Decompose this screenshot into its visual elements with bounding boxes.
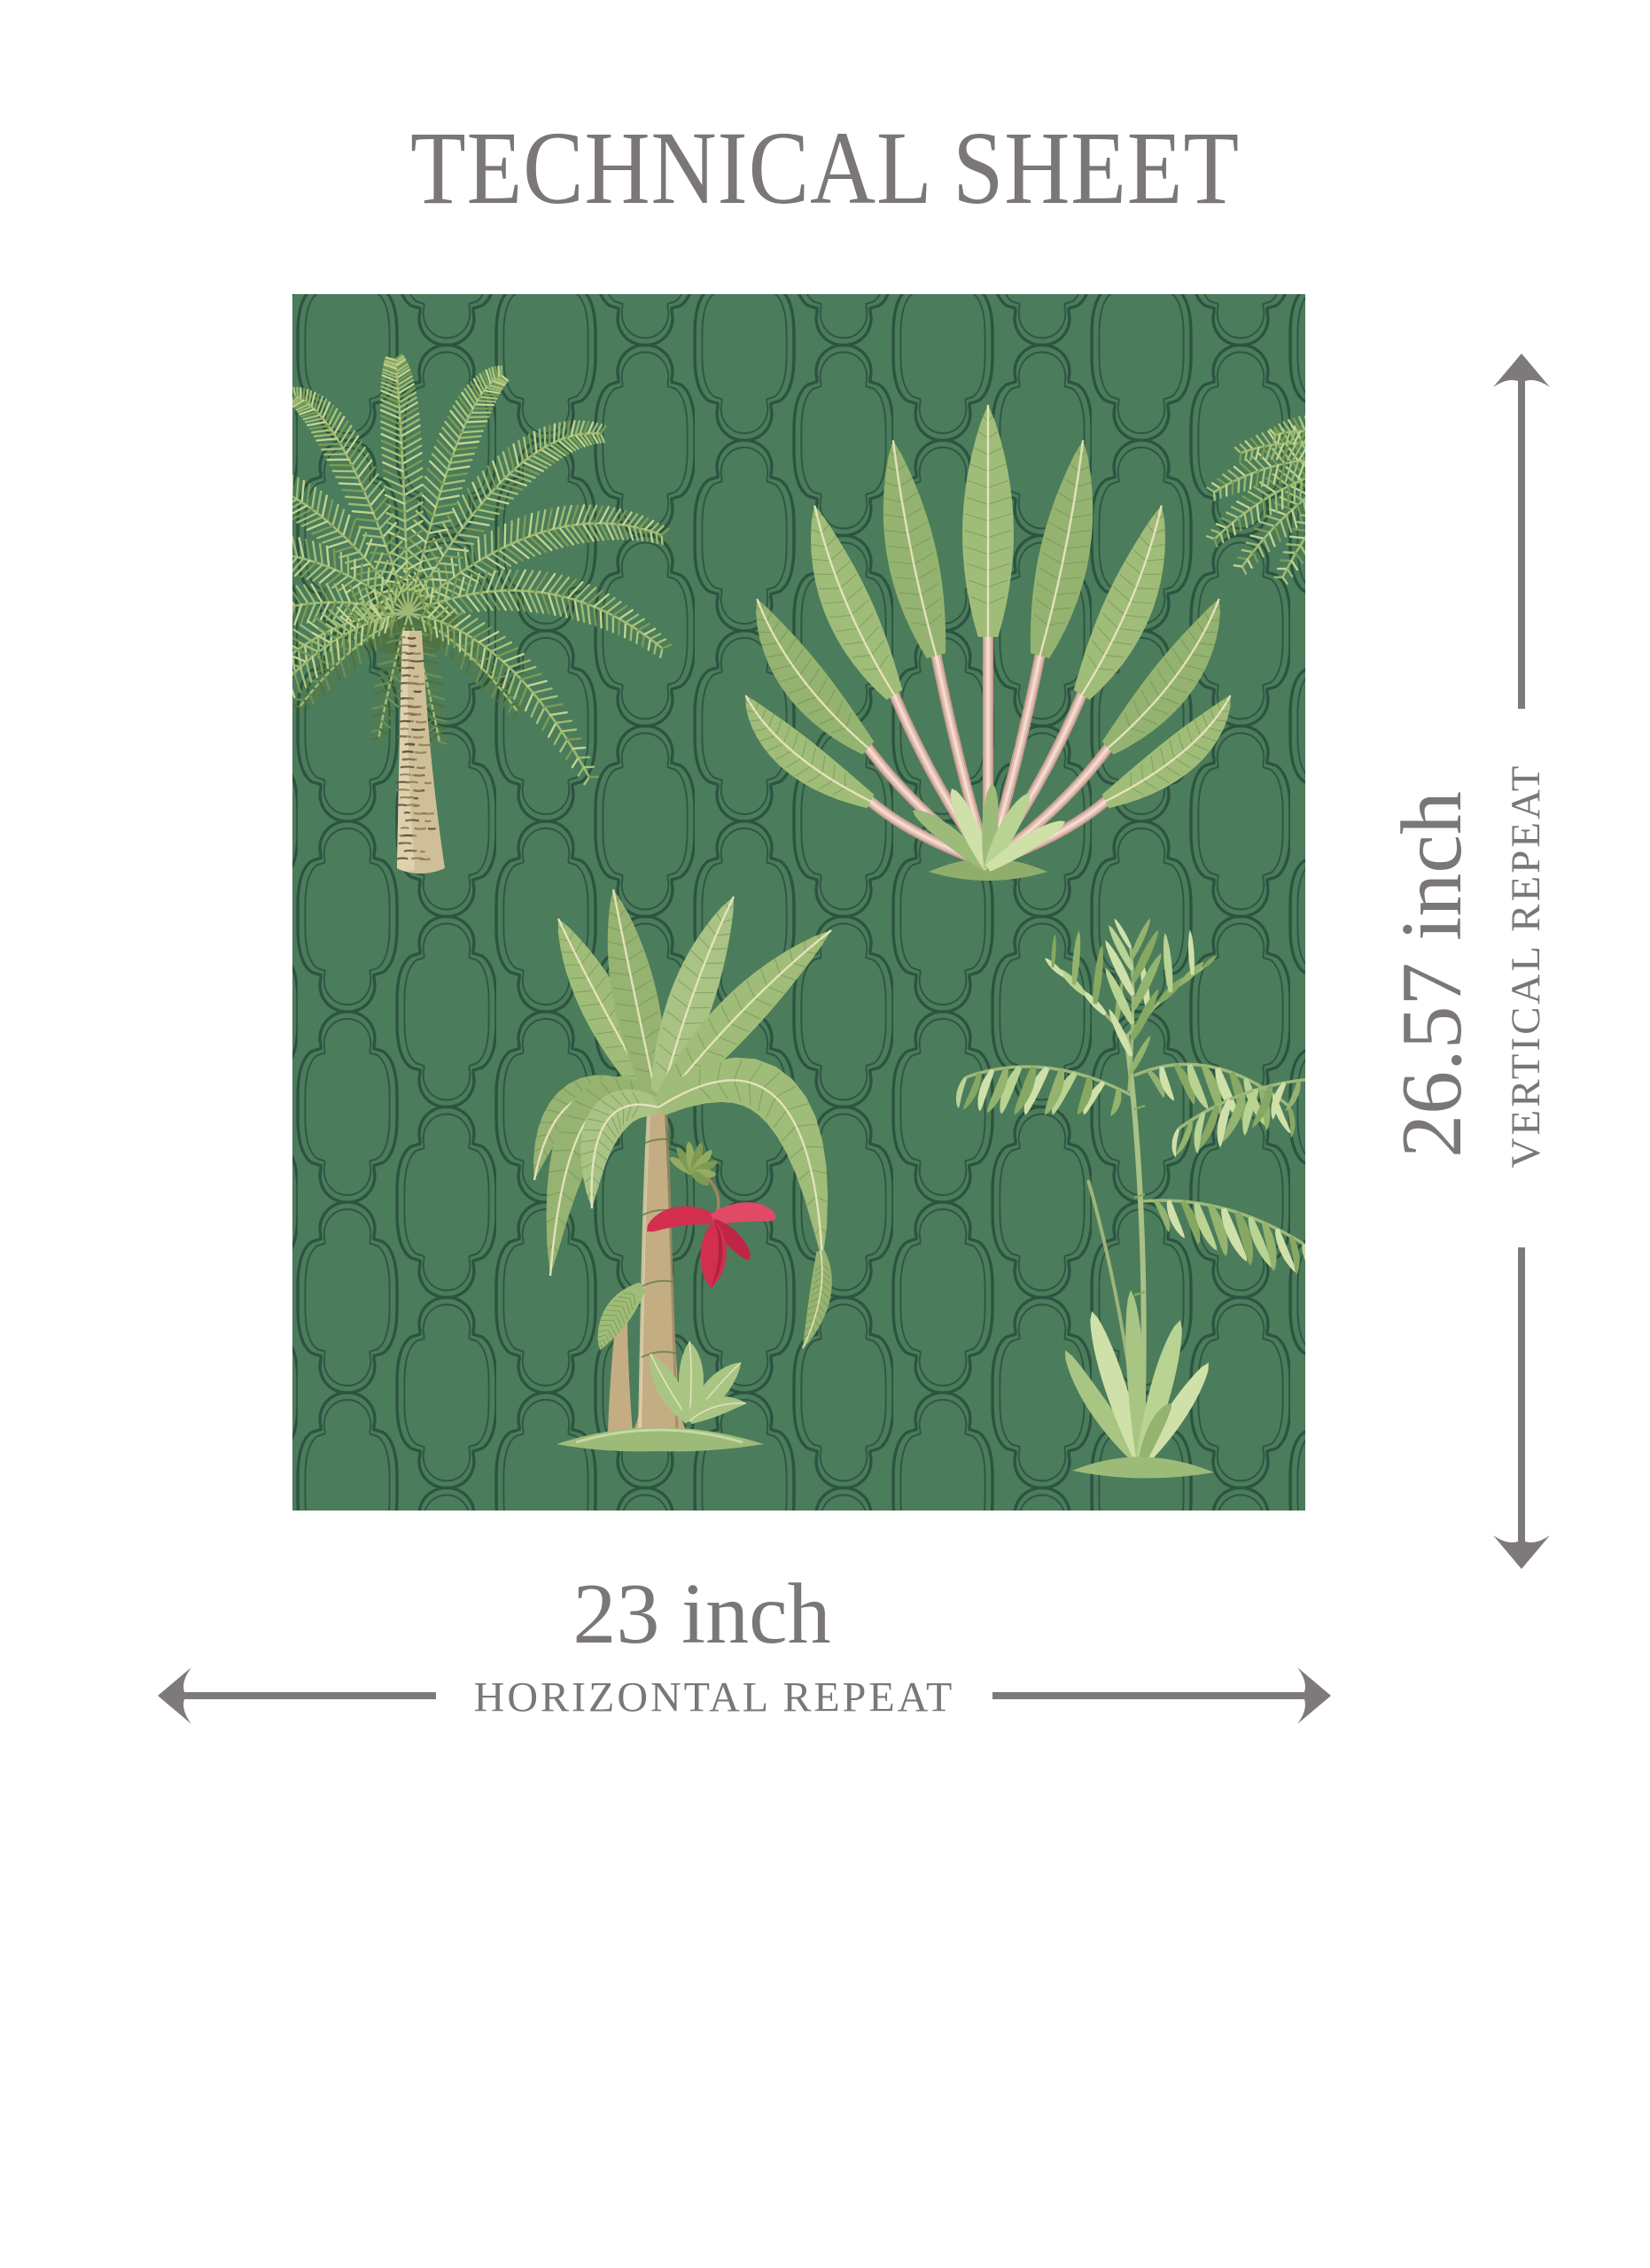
technical-sheet-page: { "title": "TECHNICAL SHEET", "dimension… [0, 0, 1650, 2268]
horizontal-repeat-label: HORIZONTAL REPEAT [474, 1674, 955, 1722]
wallpaper-swatch [292, 294, 1305, 1511]
vertical-repeat-value: 26.57 inch [1382, 791, 1482, 1158]
arrowhead-down-icon [1493, 1535, 1550, 1569]
vertical-repeat-label: VERTICAL REPEAT [1502, 764, 1550, 1169]
horizontal-repeat-value: 23 inch [572, 1565, 830, 1664]
wallpaper-pattern-image [292, 294, 1305, 1511]
page-title: TECHNICAL SHEET [107, 113, 1543, 223]
